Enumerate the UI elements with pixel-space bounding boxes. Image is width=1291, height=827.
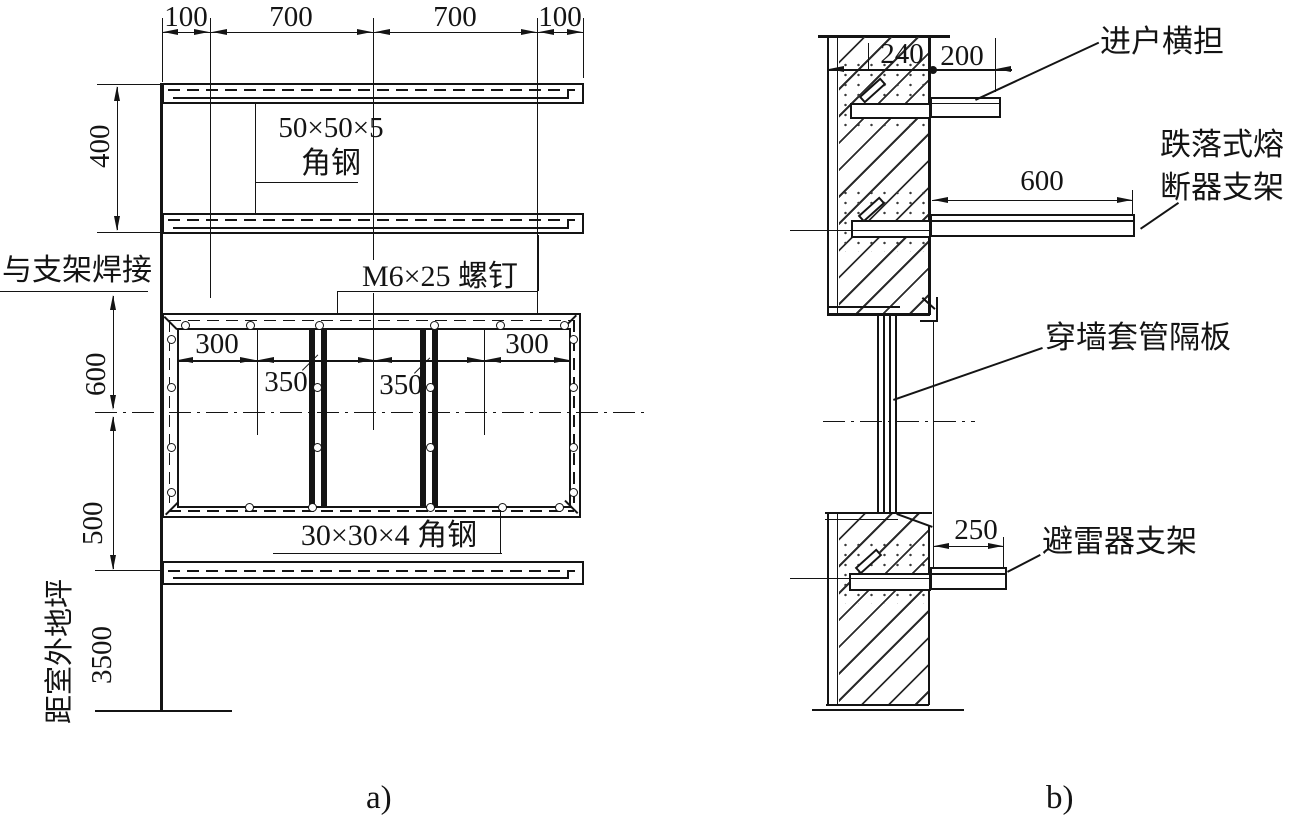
wall-face-edge [928,35,931,315]
leader-line [255,104,257,214]
bolt-hole [496,321,505,330]
bolt-hole [498,503,507,512]
bolt-hole [167,383,176,392]
arrow [934,543,949,549]
angle-label: 角钢 [283,148,379,180]
bolt-hole [313,443,322,452]
arrow [194,29,209,35]
arrow [358,357,373,363]
leader-line [893,347,1043,400]
leader-line [337,291,338,314]
frame-hidden-edge [573,320,575,511]
crossarm-bottom [162,561,584,585]
divider-bar [309,328,315,507]
arrow [521,29,536,35]
angle-end-tick [567,572,569,579]
extension-line [210,18,211,298]
reference-tick [95,570,162,571]
hidden-edge [168,570,575,572]
bushing-board-line [883,316,885,514]
hook-detail [936,297,938,322]
frame-hidden-edge [169,320,171,511]
leader-line [1140,202,1179,229]
bushing-board-line [877,316,879,514]
angle-size-label: 50×50×5 [257,113,405,143]
frame-hidden-edge [169,320,574,322]
crossarm-middle [162,213,584,234]
wall-left-edge [827,35,829,315]
bushing-board-line [895,316,897,514]
arrow [539,29,554,35]
mitre-corner [164,316,178,330]
extension-line [995,38,996,92]
centerline [95,412,648,414]
leader-line [975,42,1099,101]
dim-tick [97,84,162,85]
fuse-label-line1: 跌落式熔 [1160,129,1284,162]
ground-level-label: 距室外地坪 [36,579,78,724]
bolt-hole [426,503,435,512]
bolt-hole [569,443,578,452]
embedded-plate [850,103,931,120]
angle-edge [173,97,569,99]
angle-edge [173,227,569,229]
arrow [163,29,178,35]
arrester-bracket [930,567,1007,590]
mitre-corner [165,501,179,515]
arrow [996,66,1011,72]
bolt-hole [555,503,564,512]
bolt-hole [560,321,569,330]
fuse-label-line2: 断器支架 [1160,172,1284,205]
leader-line [538,235,539,291]
embedded-plate [849,573,931,591]
arrow [114,86,120,101]
angle-end-tick [567,91,569,99]
extension-line [868,43,869,69]
bushing-label: 穿墙套管隔板 [1045,322,1231,355]
bolt-hole [245,503,254,512]
arrow [829,66,844,72]
dim-200-label: 200 [933,41,991,71]
leader-line [1007,554,1041,572]
bolt-hole [167,443,176,452]
arrow [110,416,116,431]
divider-bar [420,328,426,507]
bolt-hole [313,383,322,392]
bolt-hole [167,488,176,497]
level-line [790,578,930,579]
screws-label: M6×25 螺钉 [340,261,540,293]
wall-left-inner-edge [837,513,839,705]
wall-bottom-line [826,704,929,707]
dim-line-600-b [932,200,1133,202]
wall-left-edge [827,513,829,705]
dim-700-right: 700 [425,2,485,32]
extension-line [484,330,485,435]
angle-steel-frame: 300 350 350 300 [162,313,581,518]
arrester-label: 避雷器支架 [1042,526,1197,559]
fuse-bracket [930,214,1135,237]
dim-700-left: 700 [261,2,321,32]
bolt-hole [167,335,176,344]
dim-600-label-b: 600 [1010,166,1074,196]
dim-250-label: 250 [944,515,1008,545]
hidden-edge [168,89,575,91]
dim-350-left: 350 [257,367,315,397]
bolt-hole [426,383,435,392]
angle-end-tick [567,221,569,229]
dim-600-label: 600 [80,353,113,397]
centerline-b [823,421,975,423]
dim-line-500 [113,417,115,569]
bracket-edge [932,220,1133,222]
label-underline [273,553,502,555]
ground-line [95,710,232,713]
weld-label: 与支架焊接 [2,255,152,287]
hidden-edge [168,219,575,221]
wall-face-line [933,322,934,568]
arrow [114,216,120,231]
divider-bar [432,328,438,507]
divider-bar [321,328,327,507]
crossarm-top [162,83,584,104]
extension-line [162,18,163,82]
dim-line-inner [178,360,570,362]
dim-3500-label: 3500 [86,626,119,684]
caption-b: b) [1046,781,1074,816]
dim-300-left: 300 [182,329,252,359]
figure-canvas: 100 700 700 100 [0,0,1291,827]
bolt-hole [181,321,190,330]
arrow [567,29,582,35]
bolt-hole [426,443,435,452]
entry-crossarm-bracket [930,97,1001,119]
bolt-hole [246,321,255,330]
dim-line-240-200 [828,69,1012,71]
bolt-hole [430,321,439,330]
label-underline [337,291,538,293]
arrow [933,197,948,203]
bracket-edge [932,103,999,105]
caption-a: a) [366,781,392,816]
bottom-angle-label: 30×30×4 角钢 [275,520,503,552]
dim-240-label: 240 [872,39,932,69]
hook-detail [920,320,938,322]
arrow [110,395,116,410]
arrow [110,295,116,310]
dim-350-right: 350 [372,370,430,400]
dim-400-label: 400 [84,125,117,169]
angle-edge [173,577,569,579]
label-underline [255,182,358,184]
label-underline [0,291,148,293]
arrow [357,29,372,35]
bolt-hole [569,335,578,344]
bolt-hole [308,503,317,512]
arrow [467,357,482,363]
ground-line-b [812,709,964,712]
arrow [110,555,116,570]
wall-face-edge [928,526,931,705]
arrow [1117,197,1132,203]
dim-origin-dot [929,66,937,74]
bolt-hole [569,488,578,497]
frame-hidden-edge [169,510,574,512]
entry-crossarm-label: 进户横担 [1100,26,1224,59]
extension-line [583,18,584,78]
arrow [375,29,390,35]
extension-line [1132,190,1133,216]
wall-bottom-line [827,306,900,308]
leader-line [500,510,501,553]
bushing-board-line [889,316,891,514]
arrow [377,357,392,363]
arrow [988,543,1003,549]
dim-300-right: 300 [492,329,562,359]
arrow [212,29,227,35]
bracket-edge [932,573,1005,575]
arrow [259,357,274,363]
bolt-hole [315,321,324,330]
dim-500-label: 500 [77,502,110,546]
bolt-hole [569,383,578,392]
wall-top-line-lower [825,512,932,515]
dim-tick [97,232,162,233]
level-line [790,230,930,231]
wall-left-inner-edge [837,35,839,315]
